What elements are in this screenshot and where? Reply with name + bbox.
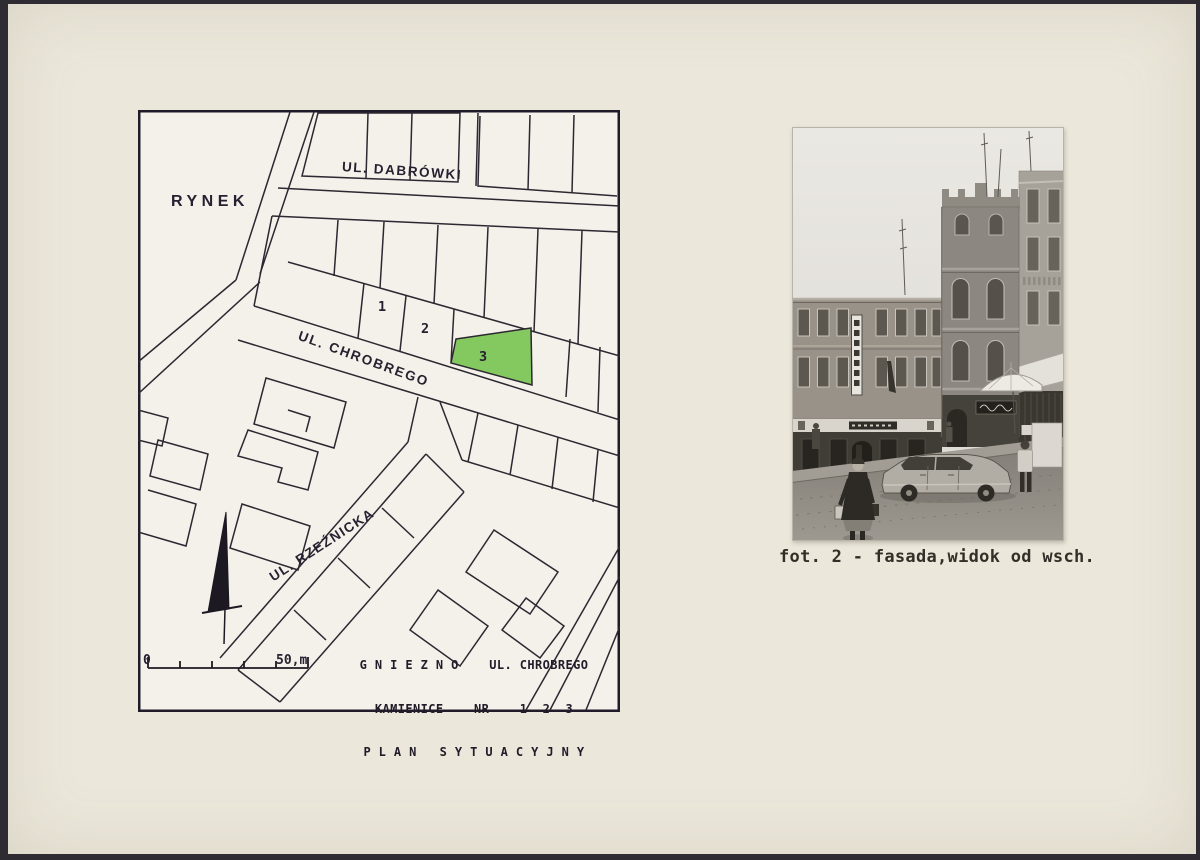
map-title-line-2: KAMIENICE NR 1 2 3 [343,702,605,717]
left-building [792,299,942,482]
right-building [1017,171,1064,447]
scanned-page: RYNEK UL. DABRÓWKI UL. CHROBREGO UL. RZE… [0,0,1200,860]
parked-car [880,455,1016,504]
paper-sheet: RYNEK UL. DABRÓWKI UL. CHROBREGO UL. RZE… [8,4,1196,854]
scale-label-end: 50,m [276,653,307,668]
scale-label-start: 0 [143,653,151,668]
facade-photo-image [792,127,1064,541]
map-label-rynek: RYNEK [171,194,249,210]
photo-caption: fot. 2 - fasada,widok od wsch. [779,547,1095,567]
facade-photo [792,127,1064,541]
parcel-number-3: 3 [479,349,487,365]
parcel-number-1: 1 [378,299,386,315]
map-title-block: G N I E Z N O UL. CHROBREGO KAMIENICE NR… [343,629,605,789]
tall-building [942,183,1020,447]
site-plan-map: RYNEK UL. DABRÓWKI UL. CHROBREGO UL. RZE… [138,110,620,712]
parcel-number-2: 2 [421,321,429,337]
map-title-line-3: P L A N S Y T U A C Y J N Y [343,745,605,760]
map-title-line-1: G N I E Z N O UL. CHROBREGO [343,658,605,673]
